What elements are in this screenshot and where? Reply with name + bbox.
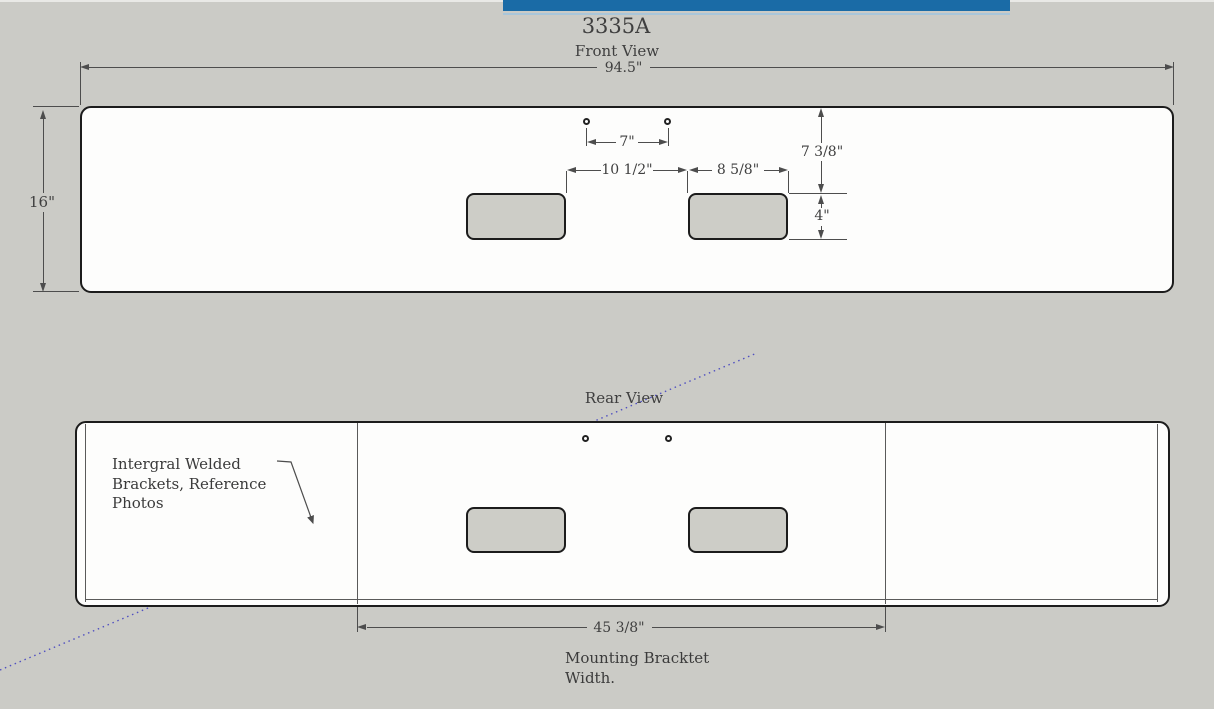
rear-right-license-recess xyxy=(688,507,788,553)
rear-right-hole xyxy=(665,435,672,442)
dim-overall-width-arrow-left xyxy=(80,64,89,70)
dim-overall-width-line-left xyxy=(89,67,597,68)
bracket-width-caption-line1: Mounting Bracktet xyxy=(565,649,745,669)
bracket-note-line3: Photos xyxy=(112,494,282,514)
dim-gap-arrow-left xyxy=(567,167,576,173)
dim-top-recess-line-lower xyxy=(821,161,822,185)
dim-bracket-width-arrow-right xyxy=(876,624,885,630)
dim-top-recess-arrow-down xyxy=(818,184,824,193)
dim-height-ext-top xyxy=(33,106,79,107)
rear-view-label: Rear View xyxy=(574,390,674,406)
dim-gap-ext-right xyxy=(687,171,688,193)
dim-recess-width-arrow-right xyxy=(779,167,788,173)
bracket-note-line2: Brackets, Reference xyxy=(112,475,282,495)
dim-gap-line-right xyxy=(653,170,678,171)
dim-height-value: 16" xyxy=(25,194,59,210)
dim-gap-ext-left xyxy=(566,171,567,193)
dim-recess-height-arrow-up xyxy=(818,195,824,204)
rear-left-license-recess xyxy=(466,507,566,553)
dim-holes-value: 7" xyxy=(613,134,641,150)
dim-recess-height-value: 4" xyxy=(806,208,838,224)
rear-right-bracket-line xyxy=(885,423,886,604)
dim-overall-width-arrow-right xyxy=(1165,64,1174,70)
rear-bumper-outline xyxy=(75,421,1170,607)
dim-holes-arrow-right xyxy=(659,139,668,145)
dim-recess-width-line-right xyxy=(764,170,779,171)
dim-top-recess-ext xyxy=(789,193,847,194)
dim-holes-line-right xyxy=(638,142,659,143)
rear-inner-bottom-line xyxy=(86,599,1158,600)
bracket-width-caption: Mounting Bracktet Width. xyxy=(565,649,745,688)
dim-overall-width-value: 94.5" xyxy=(597,60,650,76)
rear-left-bracket-line xyxy=(357,423,358,604)
dim-bracket-width-line-left xyxy=(367,627,587,628)
dim-gap-line-left xyxy=(576,170,601,171)
dim-top-recess-line-upper xyxy=(821,113,822,143)
front-left-license-recess xyxy=(466,193,566,240)
front-view-label: Front View xyxy=(567,43,667,59)
dim-gap-arrow-right xyxy=(678,167,687,173)
dim-recess-height-arrow-down xyxy=(818,230,824,239)
dim-recess-width-arrow-left xyxy=(689,167,698,173)
dim-height-arrow-down xyxy=(40,283,46,292)
dim-recess-height-ext xyxy=(789,239,847,240)
front-right-license-recess xyxy=(688,193,788,240)
dim-holes-arrow-left xyxy=(587,139,596,145)
dim-height-line-bottom xyxy=(43,212,44,285)
page-title: 3335A xyxy=(566,15,666,37)
dim-bracket-width-ext-right xyxy=(885,607,886,632)
bracket-note-line1: Intergral Welded xyxy=(112,455,282,475)
dim-top-recess-arrow-up xyxy=(818,108,824,117)
rear-right-endcap-line xyxy=(1157,424,1158,602)
dim-gap-value: 10 1/2" xyxy=(599,162,655,178)
dim-bracket-width-value: 45 3/8" xyxy=(587,620,651,636)
dim-bracket-width-arrow-left xyxy=(357,624,366,630)
dim-height-line-top xyxy=(43,114,44,193)
bracket-note: Intergral Welded Brackets, Reference Pho… xyxy=(112,455,282,514)
front-right-hole xyxy=(664,118,671,125)
bracket-width-caption-line2: Width. xyxy=(565,669,745,689)
dim-top-recess-value: 7 3/8" xyxy=(794,144,850,160)
rear-left-hole xyxy=(582,435,589,442)
dim-overall-width-line-right xyxy=(650,67,1165,68)
dim-height-arrow-up xyxy=(40,110,46,119)
rear-left-endcap-line xyxy=(85,424,86,602)
drawing-canvas: 3335A Front View 94.5" 16" 7" 10 1/2" 8 … xyxy=(0,0,1214,709)
front-left-hole xyxy=(583,118,590,125)
dim-holes-ext-right xyxy=(668,128,669,146)
accent-bar xyxy=(503,0,1010,11)
dim-bracket-width-line-right xyxy=(652,627,876,628)
dim-recess-width-ext-right xyxy=(788,171,789,193)
dim-recess-width-value: 8 5/8" xyxy=(710,162,766,178)
